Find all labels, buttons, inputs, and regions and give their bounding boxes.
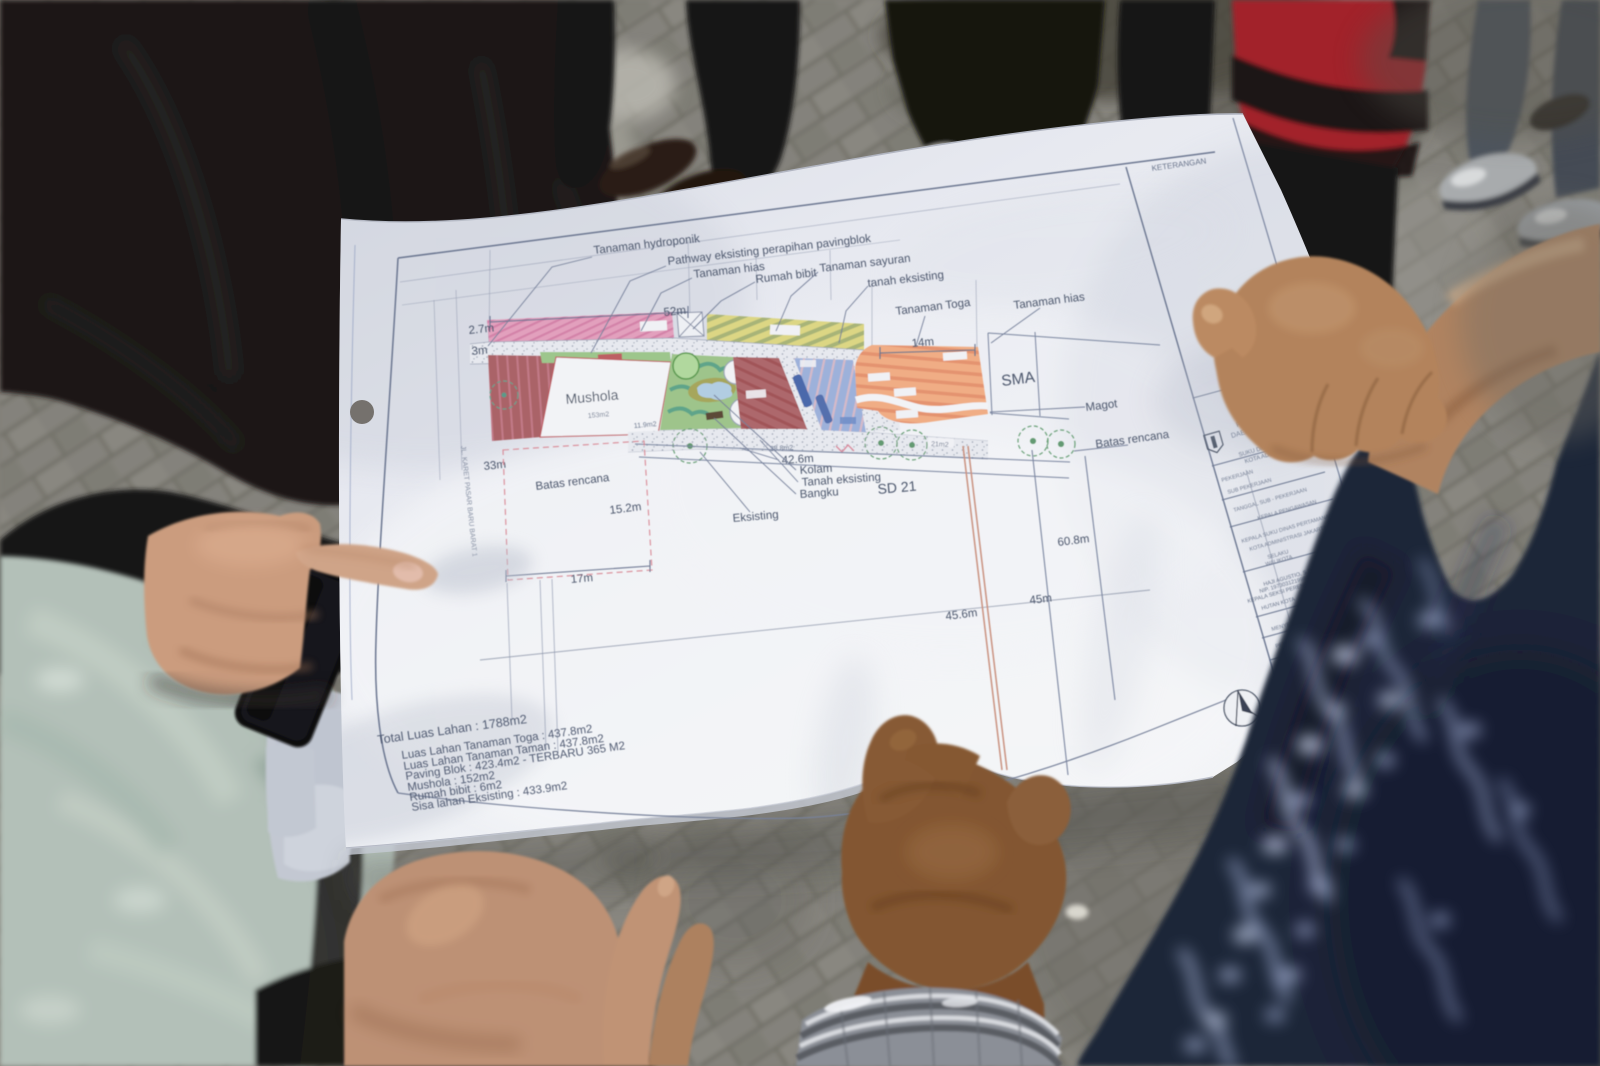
- svg-text:SD 21: SD 21: [877, 478, 917, 497]
- svg-text:17m: 17m: [570, 572, 593, 586]
- svg-text:14m: 14m: [911, 336, 934, 350]
- svg-text:3m: 3m: [471, 344, 488, 358]
- svg-text:21m2: 21m2: [931, 441, 949, 449]
- svg-text:52m: 52m: [663, 305, 687, 319]
